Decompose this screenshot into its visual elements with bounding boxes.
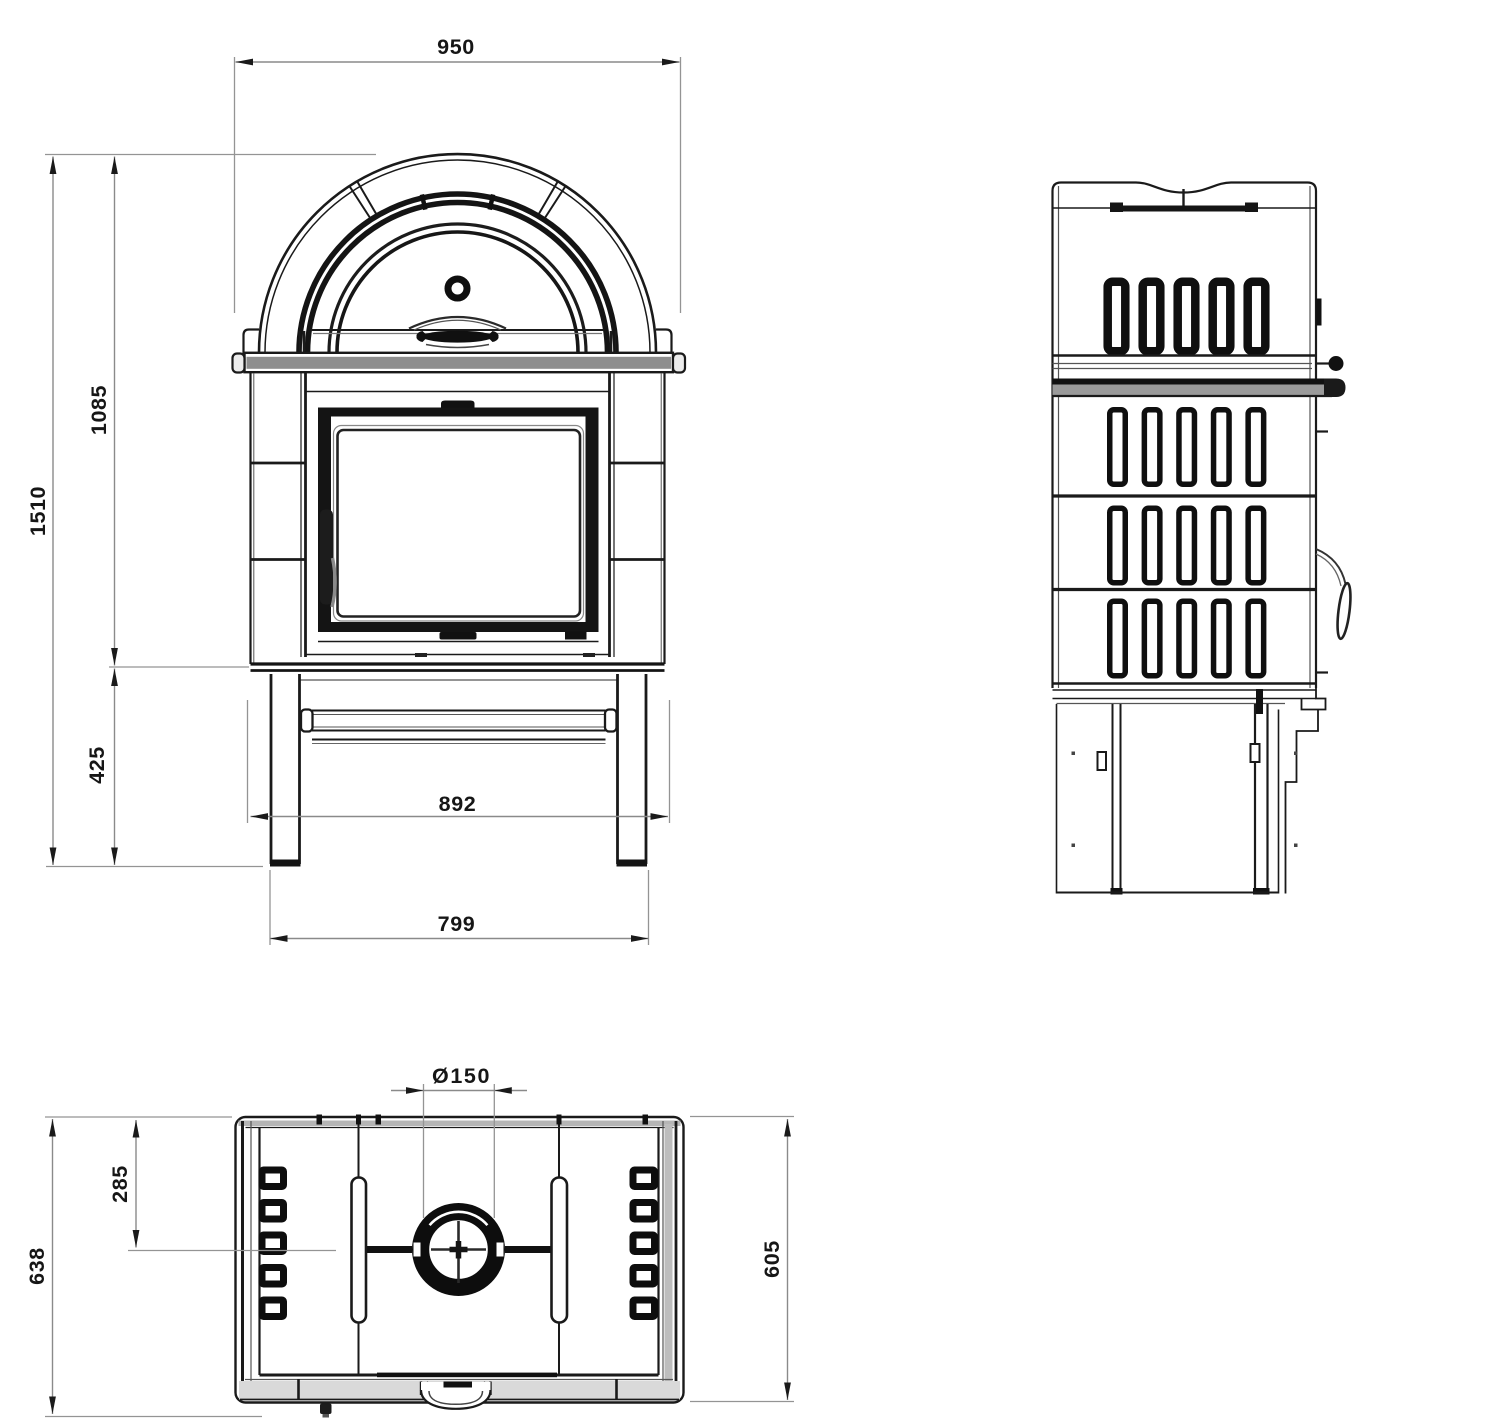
svg-text:Ø150: Ø150	[432, 1064, 491, 1088]
svg-text:1085: 1085	[87, 385, 111, 435]
svg-text:799: 799	[438, 912, 476, 936]
svg-text:425: 425	[85, 746, 109, 784]
svg-text:285: 285	[108, 1165, 132, 1203]
svg-text:1510: 1510	[26, 486, 50, 536]
svg-text:605: 605	[760, 1240, 784, 1278]
svg-text:950: 950	[437, 35, 475, 59]
svg-text:638: 638	[25, 1247, 49, 1285]
svg-text:892: 892	[439, 792, 477, 816]
